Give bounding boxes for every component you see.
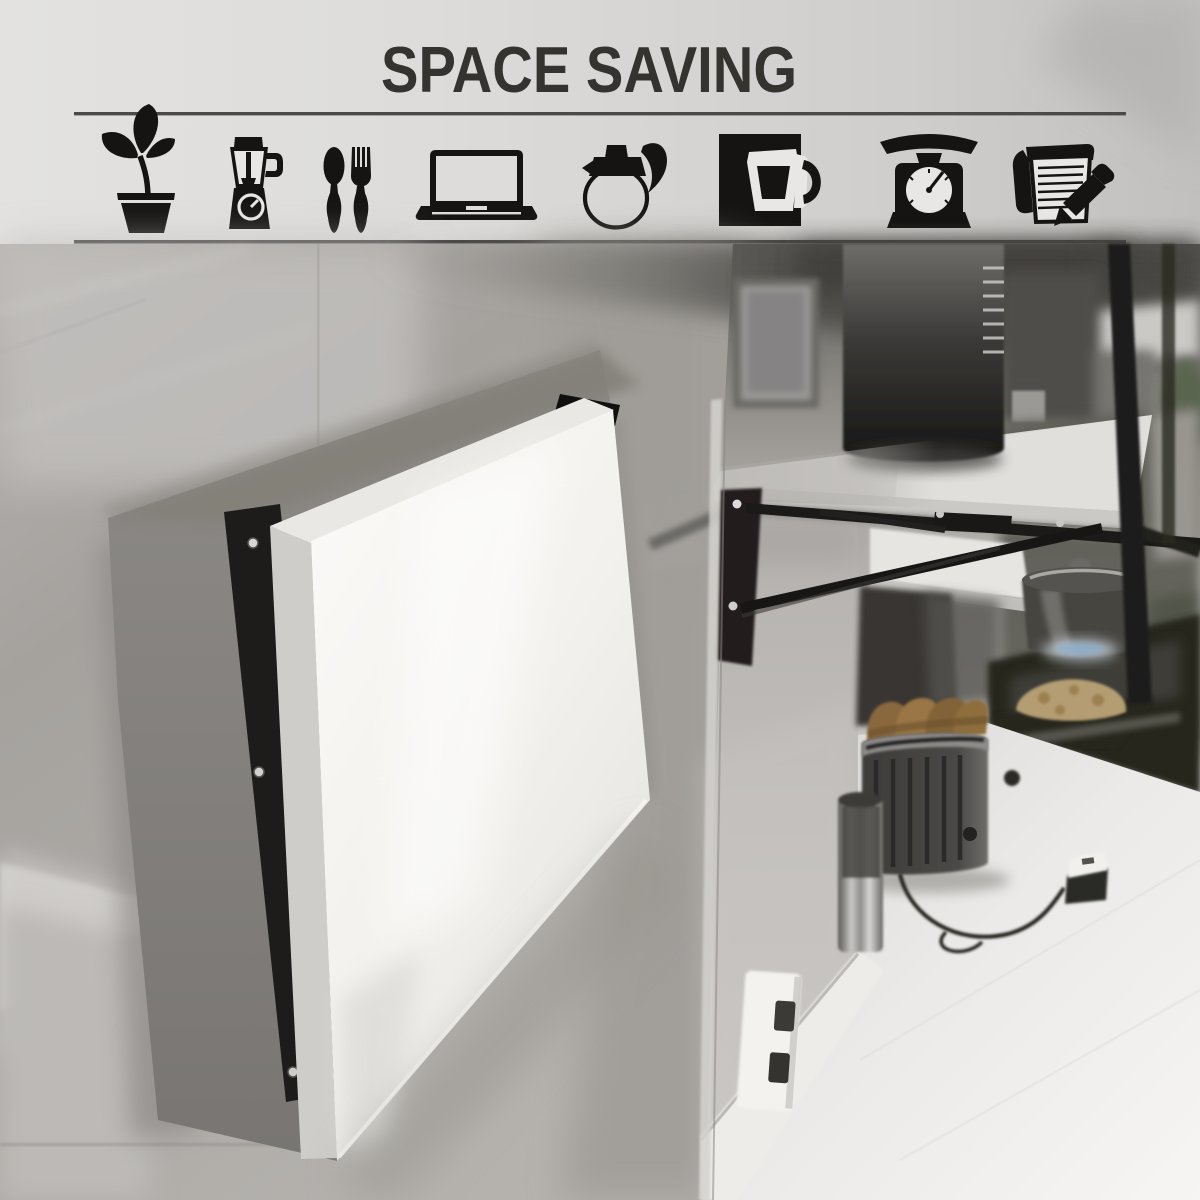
svg-text:SPACE SAVING: SPACE SAVING	[381, 33, 797, 106]
